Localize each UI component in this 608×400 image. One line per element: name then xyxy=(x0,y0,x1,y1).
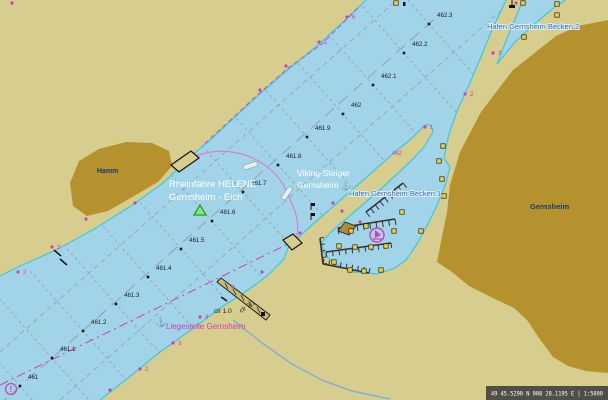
km-label: 461.5 xyxy=(189,237,205,244)
mooring-symbol xyxy=(555,13,559,17)
berth-point xyxy=(514,1,517,4)
km-label: 461.2 xyxy=(91,319,107,326)
mooring-symbol xyxy=(348,268,352,272)
km-point xyxy=(403,52,406,55)
km-point xyxy=(372,84,375,87)
km-point xyxy=(19,385,22,388)
km-label: 461.1 xyxy=(60,346,76,353)
harbor-km-label: 462 xyxy=(392,151,403,157)
harbor-basin2-label: Hafen Gernsheim Becken 2 xyxy=(487,22,579,31)
jetty-finger xyxy=(346,249,347,254)
ferry-name-label-line1: Rheinfähre HELENE xyxy=(169,179,256,190)
mooring-symbol xyxy=(555,2,559,6)
mooring-symbol xyxy=(521,1,525,5)
km-label: 462.2 xyxy=(412,41,428,48)
berth-point xyxy=(463,92,466,95)
berth-point xyxy=(284,64,287,67)
km-point xyxy=(277,164,280,167)
km-label: 461 xyxy=(28,374,39,381)
km-label: 462.1 xyxy=(381,73,397,80)
berth-point xyxy=(10,1,13,4)
jetty-finger xyxy=(378,245,379,250)
mooring-symbol xyxy=(394,1,398,5)
viking-steiger-label-line2: Gernsheim xyxy=(297,180,339,190)
jetty-finger xyxy=(333,251,334,256)
km-label: 462.3 xyxy=(437,12,453,19)
hamm-label: Hamm xyxy=(97,168,118,175)
km-point xyxy=(306,136,309,139)
km-label: 462 xyxy=(351,102,362,109)
chart-canvas[interactable]: clr 1.0 clr 9.1 ! 6132321432 461461.1461… xyxy=(0,0,608,400)
km-point xyxy=(211,220,214,223)
mooring-symbol xyxy=(400,210,404,214)
km-point xyxy=(147,276,150,279)
liegestelle-anchor-icon: ⚓ xyxy=(155,316,166,327)
mooring-symbol xyxy=(384,244,388,248)
viking-steiger-label-line1: Viking-Steiger xyxy=(297,168,350,178)
km-label: 461.8 xyxy=(286,153,302,160)
berth-point xyxy=(298,231,301,234)
km-label: 461.4 xyxy=(156,265,172,272)
clearance-label-1: clr 1.0 xyxy=(214,308,232,315)
berth-point xyxy=(198,315,201,318)
km-label: 461.3 xyxy=(124,292,140,299)
mooring-symbol xyxy=(332,260,336,264)
berth-point xyxy=(423,125,426,128)
km-point xyxy=(342,113,345,116)
mooring-symbol xyxy=(419,229,423,233)
berth-point xyxy=(317,40,320,43)
mooring-symbol xyxy=(349,229,353,233)
berth-point xyxy=(345,15,348,18)
km-point xyxy=(115,303,118,306)
berth-point xyxy=(138,367,141,370)
berth-point xyxy=(358,220,361,223)
mooring-symbol xyxy=(353,245,357,249)
mooring-symbol xyxy=(362,269,366,273)
mooring-symbol xyxy=(522,35,526,39)
km-point xyxy=(180,248,183,251)
mooring-symbol xyxy=(379,268,383,272)
jetty-finger xyxy=(326,252,327,257)
berth-point xyxy=(16,270,19,273)
berth-point xyxy=(340,209,343,212)
svg-text:!: ! xyxy=(10,385,13,394)
liegestelle-label: Liegestelle Gernsheim xyxy=(166,322,246,331)
mooring-symbol xyxy=(437,159,441,163)
town-label: Gernsheim xyxy=(530,202,570,211)
mooring-symbol xyxy=(369,245,373,249)
berth-point xyxy=(491,51,494,54)
mooring-symbol xyxy=(441,144,445,148)
harbor-basin1-label: Hafen Gernsheim Becken 1 xyxy=(349,189,441,198)
statusbar-position-scale: 49 45.5290 N 008 28.1195 E | 1:5000 xyxy=(491,391,603,398)
km-point xyxy=(428,23,431,26)
mooring-symbol xyxy=(337,244,341,248)
chart-window: clr 1.0 clr 9.1 ! 6132321432 461461.1461… xyxy=(0,0,608,400)
mooring-symbol xyxy=(392,229,396,233)
jetty-finger xyxy=(391,243,392,248)
berth-point xyxy=(260,270,263,273)
km-point xyxy=(82,330,85,333)
berth-point xyxy=(258,88,261,91)
jetty-finger xyxy=(359,248,360,253)
km-label: 461.6 xyxy=(220,209,236,216)
mooring-symbol xyxy=(440,177,444,181)
jetty-finger xyxy=(339,250,340,255)
berth-point xyxy=(231,285,234,288)
berth-point xyxy=(108,388,111,391)
km-label: 461.9 xyxy=(315,125,331,132)
status-bar: 49 45.5290 N 008 28.1195 E | 1:5000 xyxy=(486,386,608,400)
mooring-symbol xyxy=(442,194,446,198)
berth-point xyxy=(84,217,87,220)
mooring-symbol xyxy=(364,224,368,228)
berth-point xyxy=(331,201,334,204)
berth-point xyxy=(133,201,136,204)
jetty-finger xyxy=(365,247,366,252)
berth-point xyxy=(50,245,53,248)
berth-point xyxy=(171,341,174,344)
ferry-name-label-line2: Gernsheim - Eich xyxy=(169,192,242,203)
km-point xyxy=(51,357,54,360)
